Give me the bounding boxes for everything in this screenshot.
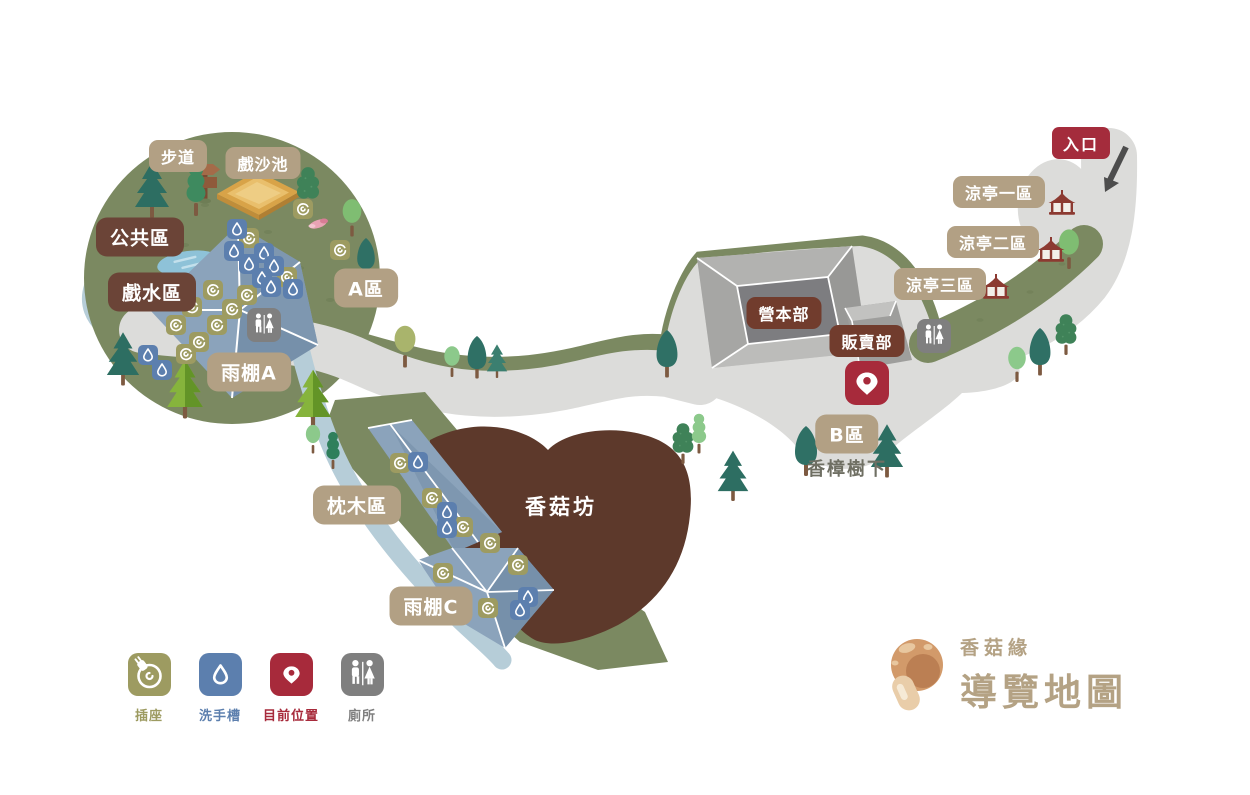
label-pavilion-area-3: 涼亭三區 (894, 268, 986, 300)
water-drop-icon (199, 653, 242, 696)
label-area-a: A區 (334, 269, 398, 308)
washbasin-icon (261, 277, 281, 297)
outlet-icon (478, 598, 498, 618)
washbasin-icon (437, 518, 457, 538)
label-shelter-c: 雨棚C (390, 587, 473, 626)
legend-label: 洗手槽 (199, 705, 241, 724)
label-shop: 販賣部 (829, 325, 904, 357)
legend-item-outlet: 插座 (121, 653, 177, 724)
label-under-camphor-tree: 香樟樹下 (795, 451, 899, 485)
outlet-icon (166, 315, 186, 335)
outlet-icon (203, 280, 223, 300)
tree-icon (306, 425, 320, 454)
legend-label: 目前位置 (263, 705, 319, 724)
legend-item-wash-basin: 洗手槽 (192, 653, 248, 724)
label-entrance: 入口 (1052, 127, 1110, 159)
legend-item-current-location: 目前位置 (263, 653, 319, 724)
legend-item-toilet: 廁所 (334, 653, 390, 724)
mushroom-logo-icon (882, 637, 946, 713)
legend-label: 插座 (135, 705, 163, 724)
logo-brand: 香菇緣 (960, 633, 1128, 660)
outlet-icon (508, 555, 528, 575)
label-sand-pool: 戲沙池 (225, 147, 300, 179)
location-pin-icon (270, 653, 313, 696)
brand-logo: 香菇緣 導覽地圖 (882, 633, 1128, 716)
logo-text: 香菇緣 導覽地圖 (960, 633, 1128, 716)
label-trail: 步道 (149, 140, 207, 172)
outlet-icon (390, 453, 410, 473)
label-area-b: B區 (815, 415, 878, 454)
outlet-icon (293, 199, 313, 219)
campground-map: 步道戲沙池公共區戲水區A區雨棚A枕木區雨棚C香菇坊營本部販賣部B區香樟樹下涼亭一… (0, 0, 1250, 795)
label-mushroom-house: 香菇坊 (513, 487, 609, 525)
outlet-icon (480, 533, 500, 553)
washbasin-icon (510, 600, 530, 620)
label-camp-hq: 營本部 (746, 297, 821, 329)
legend-label: 廁所 (348, 705, 376, 724)
outlet-icon (176, 344, 196, 364)
washbasin-icon (152, 360, 172, 380)
outlet-icon (207, 315, 227, 335)
label-pavilion-area-2: 涼亭二區 (947, 226, 1039, 258)
tree-icon (692, 414, 706, 454)
washbasin-icon (227, 219, 247, 239)
outlet-icon (330, 240, 350, 260)
toilet-icon (247, 308, 281, 342)
washbasin-icon (408, 452, 428, 472)
label-shelter-a: 雨棚A (207, 353, 291, 392)
label-public-area: 公共區 (96, 218, 184, 257)
toilet-icon (917, 319, 951, 353)
logo-title: 導覽地圖 (960, 662, 1128, 716)
outlet-icon (433, 563, 453, 583)
pavilion-icon (983, 274, 1010, 299)
male-female-icon (341, 653, 384, 696)
label-sleeper-area: 枕木區 (313, 486, 401, 525)
tree-icon (718, 451, 749, 501)
power-plug-icon (128, 653, 171, 696)
label-water-play-area: 戲水區 (108, 273, 196, 312)
current-location-icon (845, 361, 889, 405)
washbasin-icon (283, 279, 303, 299)
label-pavilion-area-1: 涼亭一區 (953, 176, 1045, 208)
legend: 插座 洗手槽 目前位置 廁所 (121, 653, 390, 724)
